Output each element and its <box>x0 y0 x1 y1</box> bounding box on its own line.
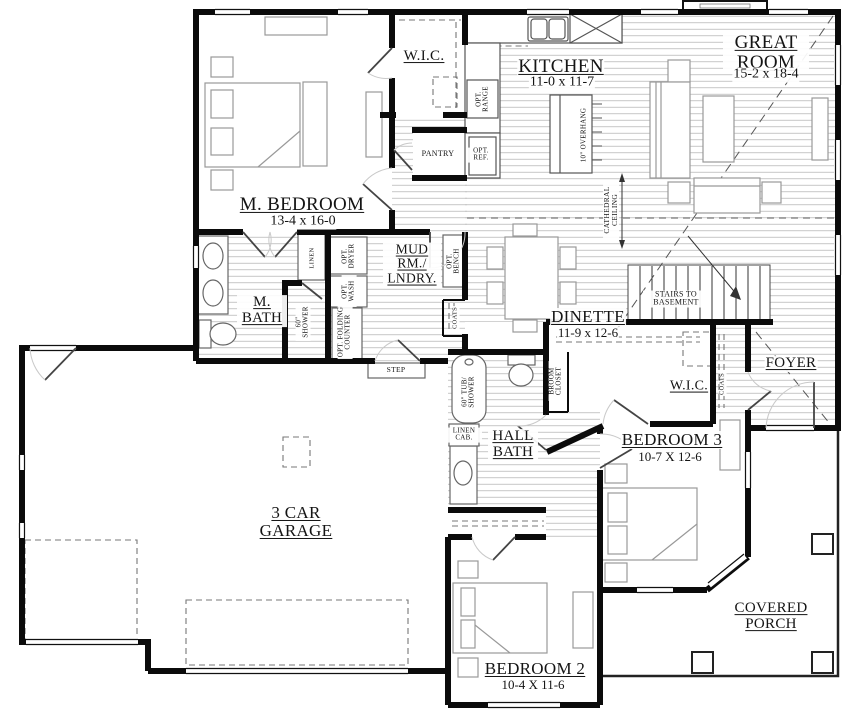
annotation-tub-shower: 60" TUB/ SHOWER <box>462 370 477 414</box>
room-dims-bedroom2: 10-4 X 11-6 <box>500 678 565 692</box>
room-label-mud-room: MUD RM./ LNDRY. <box>383 243 441 286</box>
room-dims-kitchen: 11-0 x 11-7 <box>529 76 595 91</box>
annotation-opt-dryer: OPT. DRYER <box>342 240 357 272</box>
floor-plan-drawing <box>0 0 844 710</box>
annotation-linen-cab: LINEN CAB. <box>446 428 482 443</box>
room-label-garage: 3 CAR GARAGE <box>258 504 334 540</box>
room-label-bedroom3: BEDROOM 3 <box>621 431 723 449</box>
annotation-opt-ref: OPT. REF. <box>467 148 495 163</box>
annotation-coats-mud: COATS <box>453 306 460 330</box>
annotation-overhang: 10" OVERHANG <box>580 107 587 163</box>
annotation-coats-foyer: COATS <box>720 372 727 396</box>
annotation-cathedral-ceiling: CATHEDRAL CEILING <box>603 180 619 240</box>
annotation-pantry: PANTRY <box>421 150 456 158</box>
room-dims-dinette: 11-9 x 12-6 <box>557 326 619 340</box>
room-dims-bedroom3: 10-7 X 12-6 <box>637 450 703 464</box>
room-dims-great-room: 15-2 x 18-4 <box>732 68 799 83</box>
annotation-linen: LINEN <box>310 247 317 270</box>
room-label-bedroom2: BEDROOM 2 <box>484 660 586 678</box>
room-label-master-bedroom: M. BEDROOM <box>239 195 365 215</box>
annotation-step: STEP <box>386 366 407 374</box>
wic2-floor <box>547 326 713 422</box>
annotation-opt-wash: OPT. WASH <box>342 275 357 307</box>
room-label-bedroom3-wic: W.I.C. <box>669 380 709 395</box>
annotation-opt-range: OPT. RANGE <box>476 83 491 115</box>
annotation-broom-closet: BROOM CLOSET <box>549 361 564 401</box>
room-label-hall-bath: HALL BATH <box>488 429 538 461</box>
room-label-master-bath: M. BATH <box>237 295 287 327</box>
annotation-shower: 60" SHOWER <box>296 303 311 341</box>
room-label-covered-porch: COVERED PORCH <box>725 601 817 633</box>
annotation-stairs: STAIRS TO BASEMENT <box>643 291 709 308</box>
room-label-master-wic: W.I.C. <box>403 49 446 65</box>
room-label-dinette: DINETTE <box>550 308 626 326</box>
floor-plan: W.I.C. KITCHEN 11-0 x 11-7 GREAT ROOM 15… <box>0 0 844 710</box>
room-dims-master-bedroom: 13-4 x 16-0 <box>269 215 336 230</box>
room-label-foyer: FOYER <box>765 356 818 372</box>
annotation-opt-bench: OPT. BENCH <box>447 245 462 277</box>
annotation-opt-folding-counter: OPT. FOLDING COUNTER <box>338 305 353 359</box>
